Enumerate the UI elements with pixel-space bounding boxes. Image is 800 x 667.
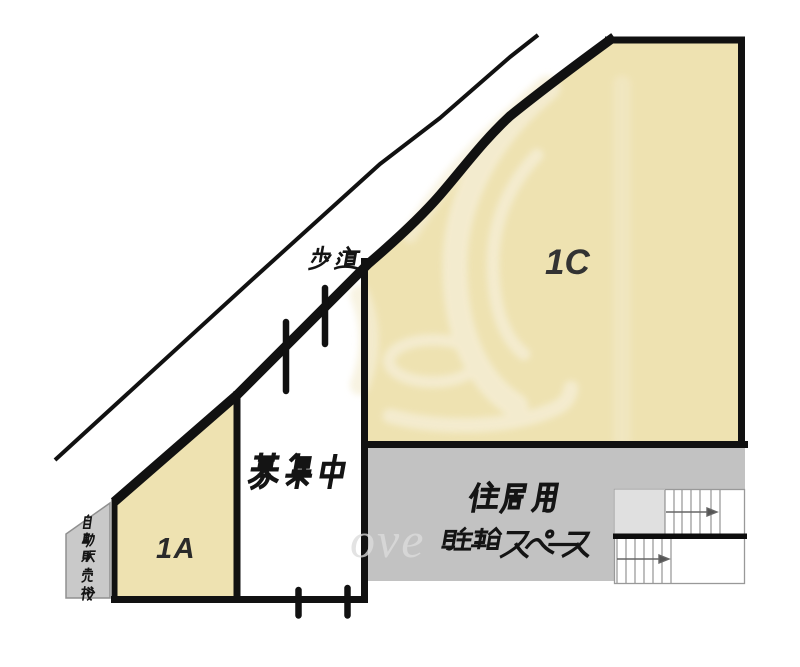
- svg-text:ove: ove: [350, 512, 425, 568]
- svg-text:1A: 1A: [156, 533, 196, 565]
- svg-text:1C: 1C: [545, 243, 590, 282]
